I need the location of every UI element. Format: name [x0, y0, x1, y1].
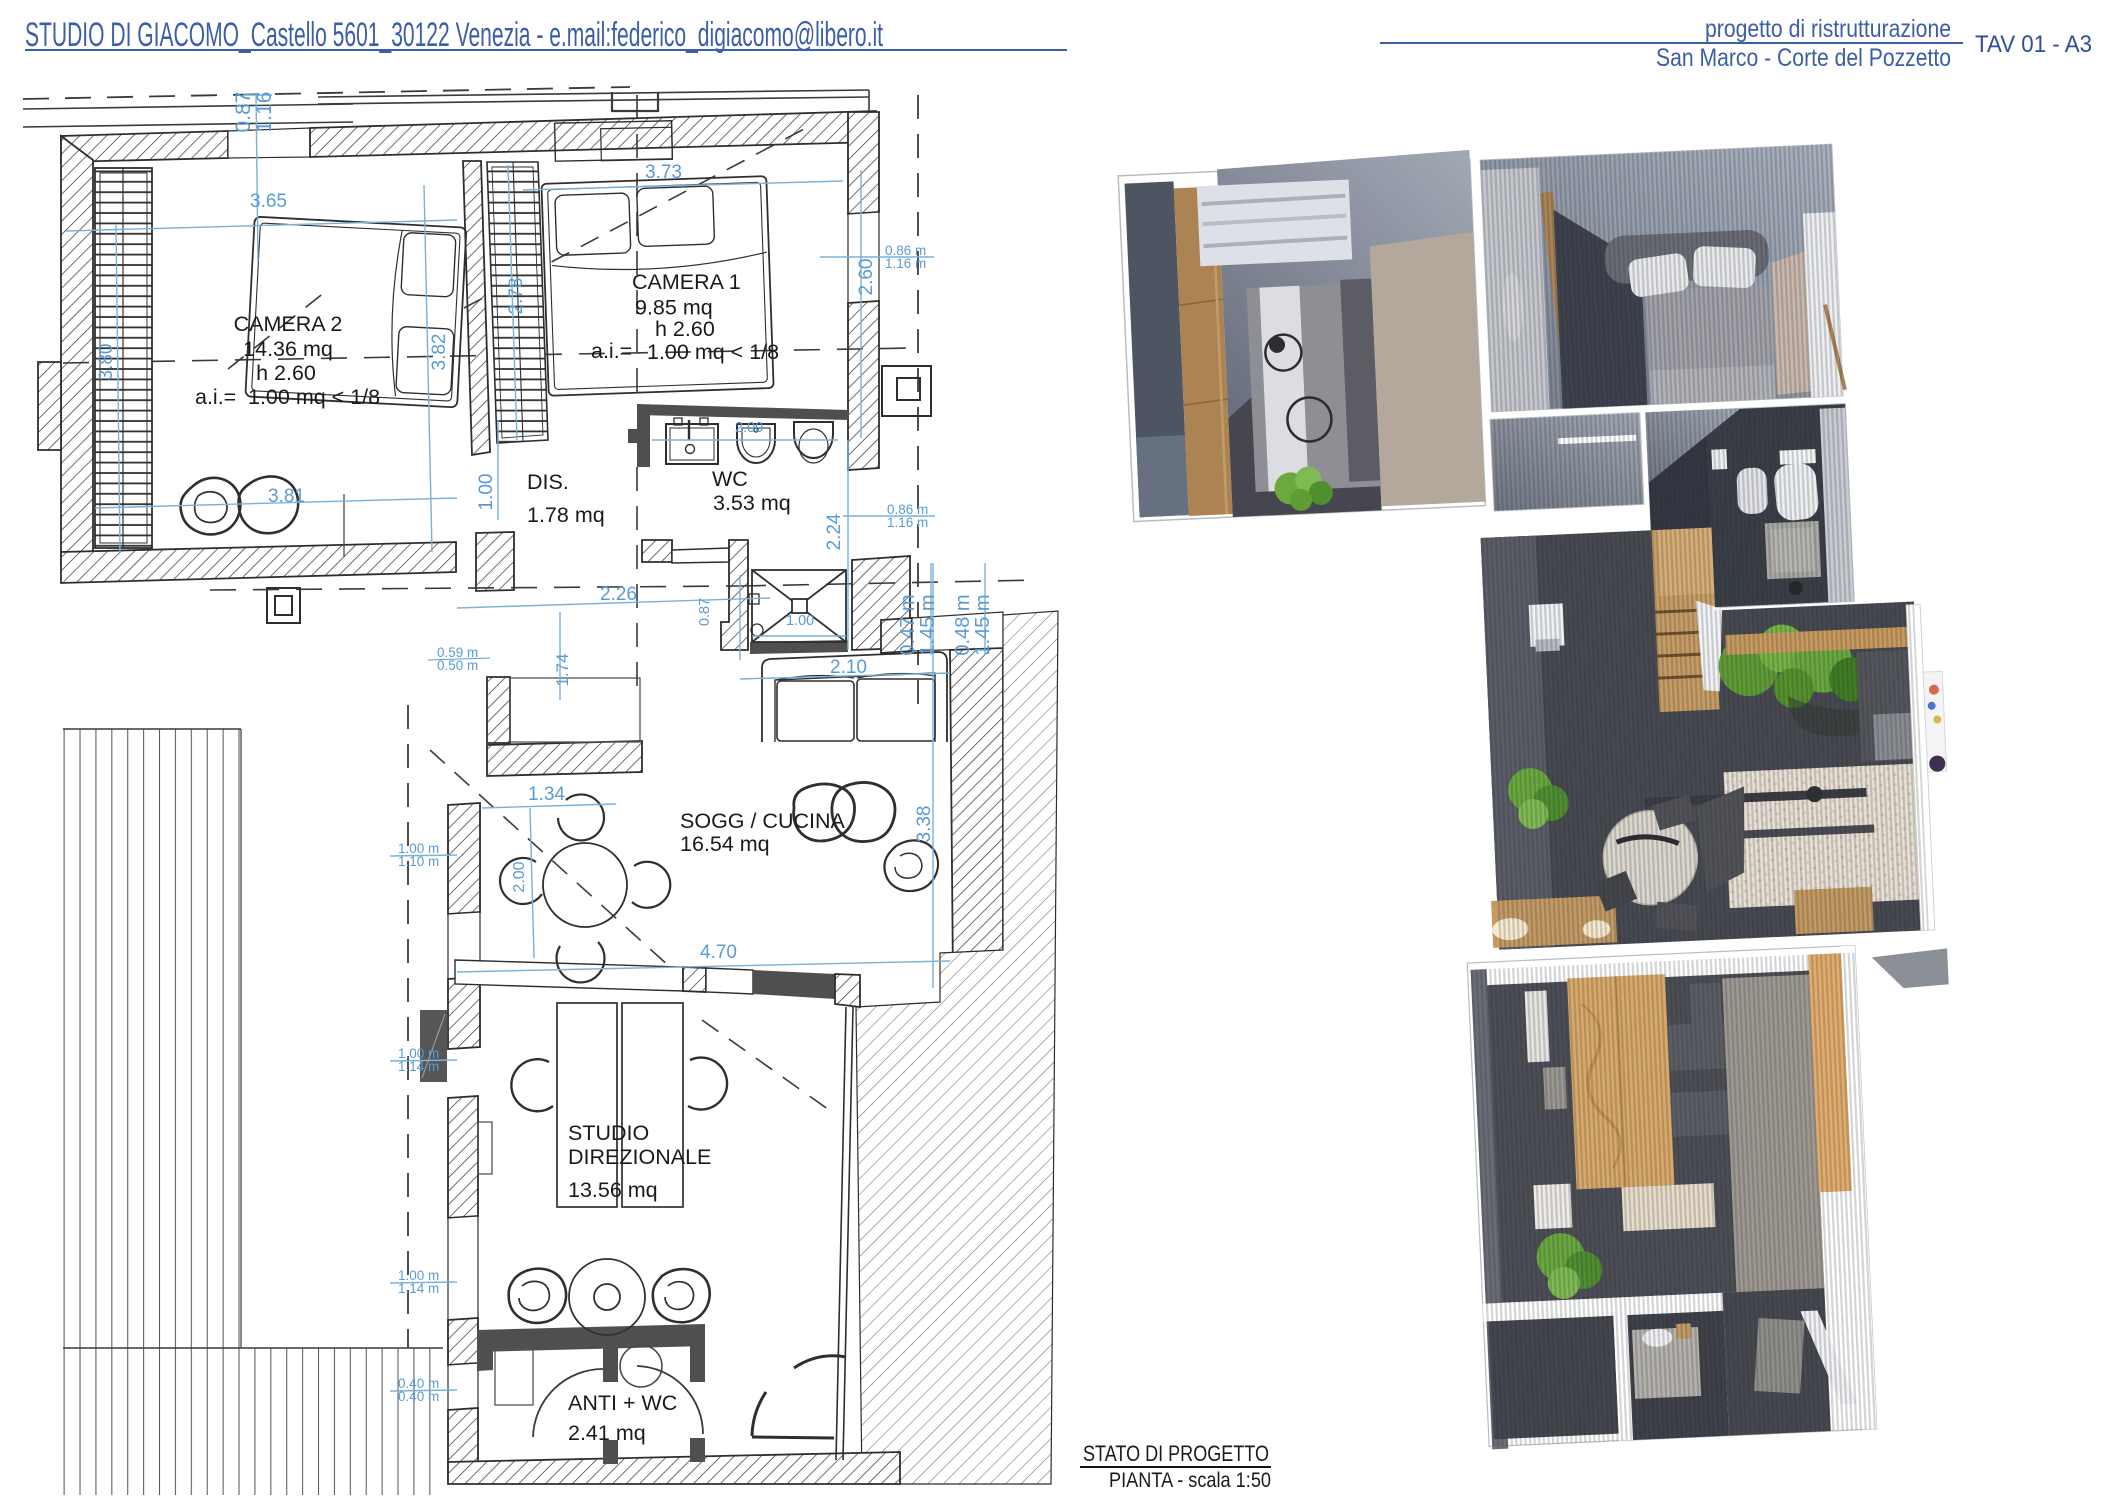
svg-text:1.45 m: 1.45 m [972, 594, 994, 655]
svg-text:STUDIO: STUDIO [568, 1121, 649, 1145]
svg-text:STUDIO DI GIACOMO_Castello 560: STUDIO DI GIACOMO_Castello 5601_30122 Ve… [25, 16, 883, 54]
svg-text:0.47 m: 0.47 m [897, 594, 919, 655]
svg-text:CAMERA 1: CAMERA 1 [632, 270, 741, 294]
svg-text:2.60: 2.60 [856, 259, 877, 296]
svg-text:progetto di ristrutturazione: progetto di ristrutturazione [1705, 15, 1951, 43]
svg-text:ANTI + WC: ANTI + WC [568, 1391, 677, 1415]
svg-text:a.i.=: a.i.= [195, 385, 236, 409]
svg-text:1.16 m: 1.16 m [887, 515, 928, 530]
svg-text:1.14 m: 1.14 m [398, 1059, 439, 1074]
svg-text:1.16 m: 1.16 m [885, 256, 926, 271]
svg-text:PIANTA - scala 1:50: PIANTA - scala 1:50 [1109, 1469, 1271, 1492]
svg-text:DIS.: DIS. [527, 470, 569, 494]
svg-text:0.48 m: 0.48 m [952, 594, 974, 655]
svg-text:2.78: 2.78 [506, 278, 527, 315]
svg-text:WC: WC [712, 467, 748, 491]
svg-text:3.82: 3.82 [429, 334, 450, 371]
svg-text:3.81: 3.81 [268, 486, 305, 507]
svg-text:CAMERA 2: CAMERA 2 [234, 312, 343, 336]
svg-text:3.38: 3.38 [914, 806, 935, 843]
svg-text:1.00: 1.00 [786, 613, 814, 629]
svg-text:a.i.=: a.i.= [591, 339, 632, 363]
svg-text:3.65: 3.65 [250, 191, 287, 212]
svg-text:STATO DI PROGETTO: STATO DI PROGETTO [1083, 1441, 1269, 1466]
svg-text:1.00 mq < 1/8: 1.00 mq < 1/8 [248, 385, 380, 409]
svg-text:13.56 mq: 13.56 mq [568, 1178, 658, 1202]
svg-text:1.78 mq: 1.78 mq [527, 503, 605, 527]
svg-text:TAV 01 - A3: TAV 01 - A3 [1975, 31, 2092, 58]
svg-text:SOGG / CUCINA: SOGG / CUCINA [680, 809, 846, 833]
svg-text:14.36 mq: 14.36 mq [243, 337, 333, 361]
svg-text:16.54 mq: 16.54 mq [680, 832, 770, 856]
svg-text:2.24: 2.24 [824, 513, 845, 550]
svg-text:h 2.60: h 2.60 [256, 361, 316, 385]
svg-text:3.80: 3.80 [96, 344, 117, 381]
svg-text:2.41 mq: 2.41 mq [568, 1421, 646, 1445]
svg-text:1.16: 1.16 [253, 92, 276, 133]
svg-text:3.53 mq: 3.53 mq [713, 491, 791, 515]
svg-text:1.34: 1.34 [528, 784, 565, 805]
svg-text:9.85 mq: 9.85 mq [635, 296, 713, 320]
svg-text:0.50 m: 0.50 m [437, 658, 478, 673]
svg-text:2.00: 2.00 [511, 861, 528, 892]
svg-text:2.00: 2.00 [735, 420, 763, 436]
svg-text:DIREZIONALE: DIREZIONALE [568, 1145, 711, 1169]
svg-text:1.00 mq < 1/8: 1.00 mq < 1/8 [647, 340, 779, 364]
svg-text:San Marco - Corte del Pozzetto: San Marco - Corte del Pozzetto [1656, 44, 1951, 72]
svg-text:2.10: 2.10 [830, 657, 867, 678]
svg-text:4.70: 4.70 [700, 942, 737, 963]
svg-text:0.87: 0.87 [697, 598, 713, 626]
svg-text:1.14 m: 1.14 m [398, 1281, 439, 1296]
svg-text:1.45 m: 1.45 m [917, 594, 939, 655]
svg-text:0.40 m: 0.40 m [398, 1389, 439, 1404]
svg-text:3.73: 3.73 [645, 162, 682, 183]
svg-text:h 2.60: h 2.60 [655, 317, 715, 341]
svg-text:1.00: 1.00 [476, 474, 497, 511]
svg-text:2.26: 2.26 [600, 584, 637, 605]
svg-text:1.10 m: 1.10 m [398, 854, 439, 869]
svg-text:1.74: 1.74 [553, 653, 572, 686]
svg-text:0.87: 0.87 [232, 92, 255, 133]
